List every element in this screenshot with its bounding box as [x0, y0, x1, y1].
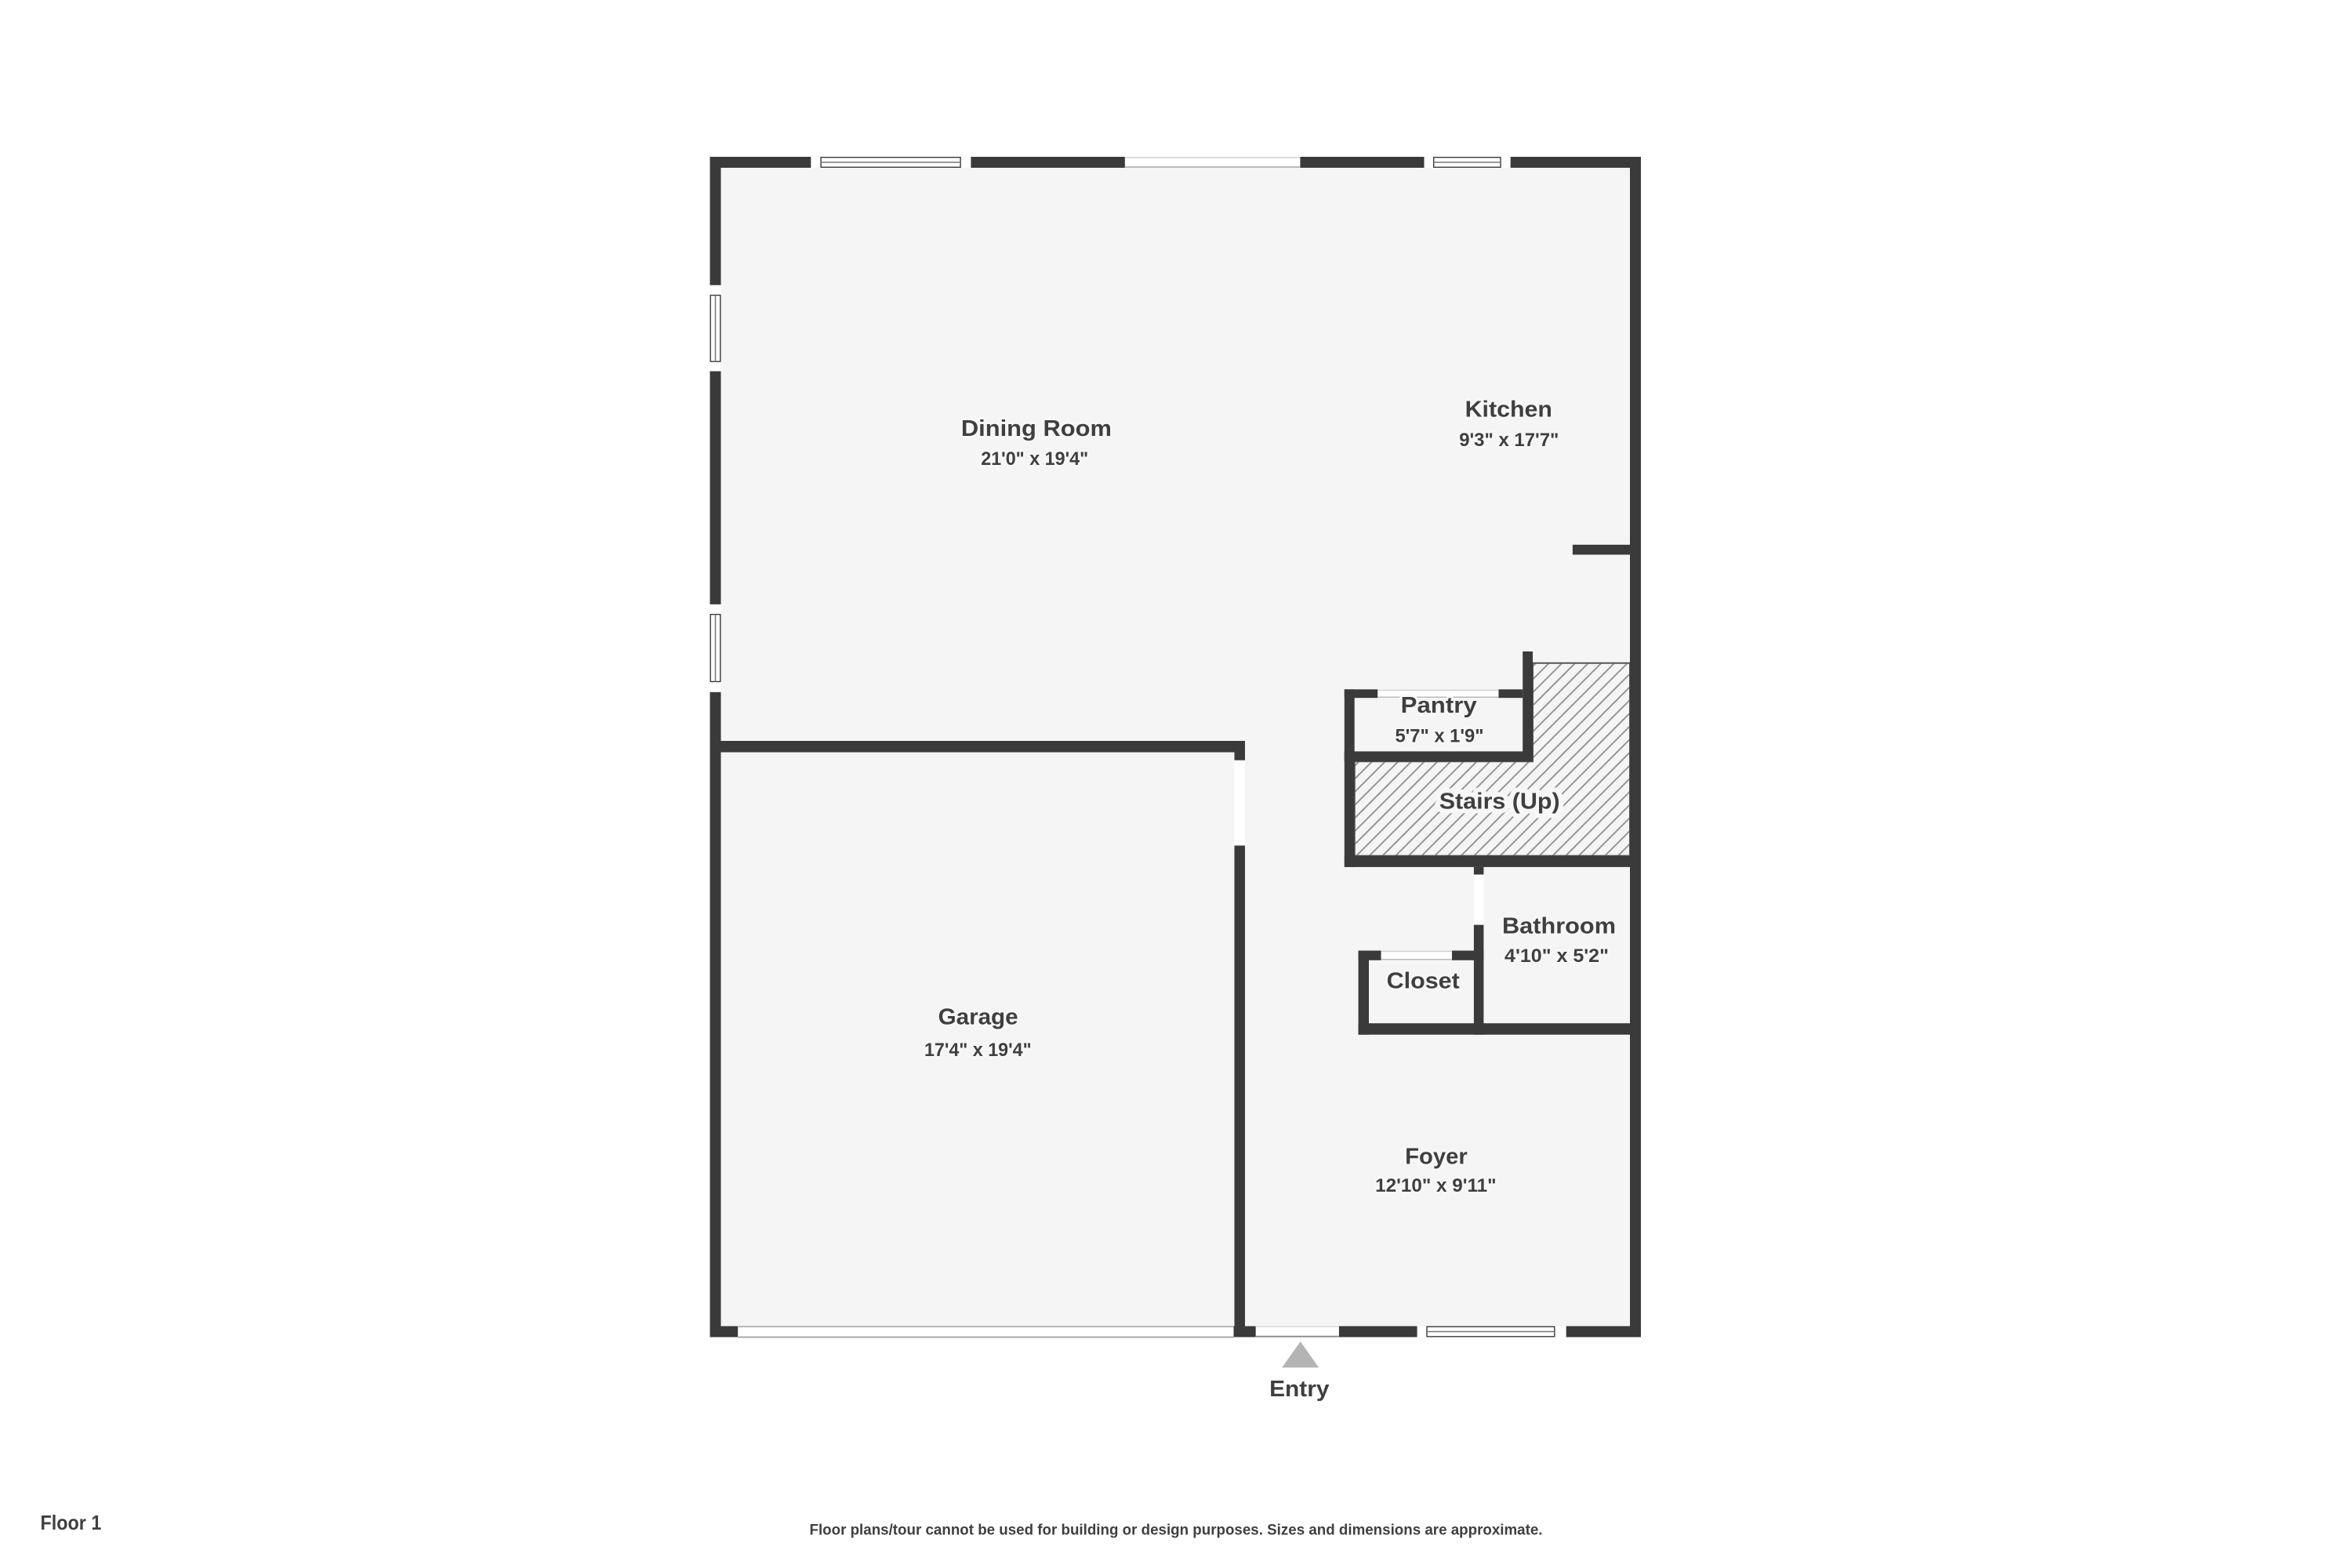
svg-text:Dining Room: Dining Room — [961, 416, 1112, 441]
svg-text:17'4" x 19'4": 17'4" x 19'4" — [924, 1040, 1032, 1061]
svg-text:9'3" x 17'7": 9'3" x 17'7" — [1459, 430, 1559, 451]
svg-text:Entry: Entry — [1269, 1377, 1329, 1402]
svg-text:4'10" x 5'2": 4'10" x 5'2" — [1504, 946, 1609, 967]
svg-text:Closet: Closet — [1387, 969, 1461, 994]
svg-text:Garage: Garage — [938, 1004, 1018, 1029]
svg-text:Floor 1: Floor 1 — [41, 1511, 102, 1534]
svg-text:Foyer: Foyer — [1405, 1144, 1468, 1169]
svg-text:21'0" x 19'4": 21'0" x 19'4" — [981, 448, 1088, 470]
svg-text:Stairs (Up): Stairs (Up) — [1439, 789, 1560, 814]
svg-text:Kitchen: Kitchen — [1465, 397, 1552, 423]
svg-text:Bathroom: Bathroom — [1502, 914, 1616, 939]
svg-text:Pantry: Pantry — [1401, 693, 1477, 718]
svg-text:12'10" x 9'11": 12'10" x 9'11" — [1375, 1175, 1497, 1196]
svg-text:5'7" x 1'9": 5'7" x 1'9" — [1395, 726, 1483, 747]
svg-text:Floor plans/tour cannot be use: Floor plans/tour cannot be used for buil… — [810, 1521, 1543, 1538]
